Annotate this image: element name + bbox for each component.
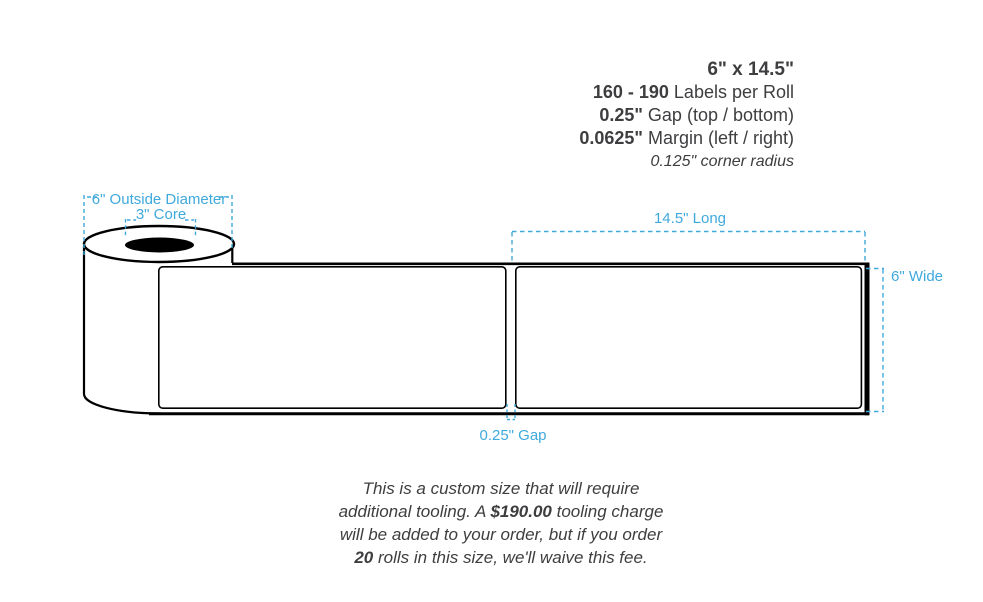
labels-per-roll-count: 160 - 190	[593, 82, 669, 102]
label-roll-diagram-page: 6" Outside Diameter 3" Core 14.5" Long 6…	[0, 0, 983, 602]
length-label: 14.5" Long	[654, 211, 726, 227]
label-2	[516, 267, 862, 408]
tooling-note: This is a custom size that will require …	[331, 477, 671, 569]
margin-spec-text: Margin (left / right)	[643, 128, 794, 148]
gap-bracket	[507, 404, 515, 420]
gap-label: 0.25" Gap	[479, 428, 546, 444]
margin-spec-line: 0.0625" Margin (left / right)	[579, 127, 794, 150]
core-label: 3" Core	[136, 207, 186, 223]
labels-per-roll-text: Labels per Roll	[669, 82, 794, 102]
margin-spec-value: 0.0625"	[579, 128, 643, 148]
width-label: 6" Wide	[891, 269, 943, 285]
roll-body-outline	[84, 246, 160, 414]
roll-core	[125, 238, 194, 253]
label-1	[159, 267, 506, 408]
gap-spec-line: 0.25" Gap (top / bottom)	[579, 104, 794, 127]
size-title: 6" x 14.5"	[579, 58, 794, 81]
size-specs: 6" x 14.5" 160 - 190 Labels per Roll 0.2…	[579, 58, 794, 173]
labels-per-roll-line: 160 - 190 Labels per Roll	[579, 81, 794, 104]
gap-spec-value: 0.25"	[599, 105, 643, 125]
gap-spec-text: Gap (top / bottom)	[643, 105, 794, 125]
corner-radius-note: 0.125" corner radius	[579, 150, 794, 173]
length-bracket	[512, 232, 865, 263]
